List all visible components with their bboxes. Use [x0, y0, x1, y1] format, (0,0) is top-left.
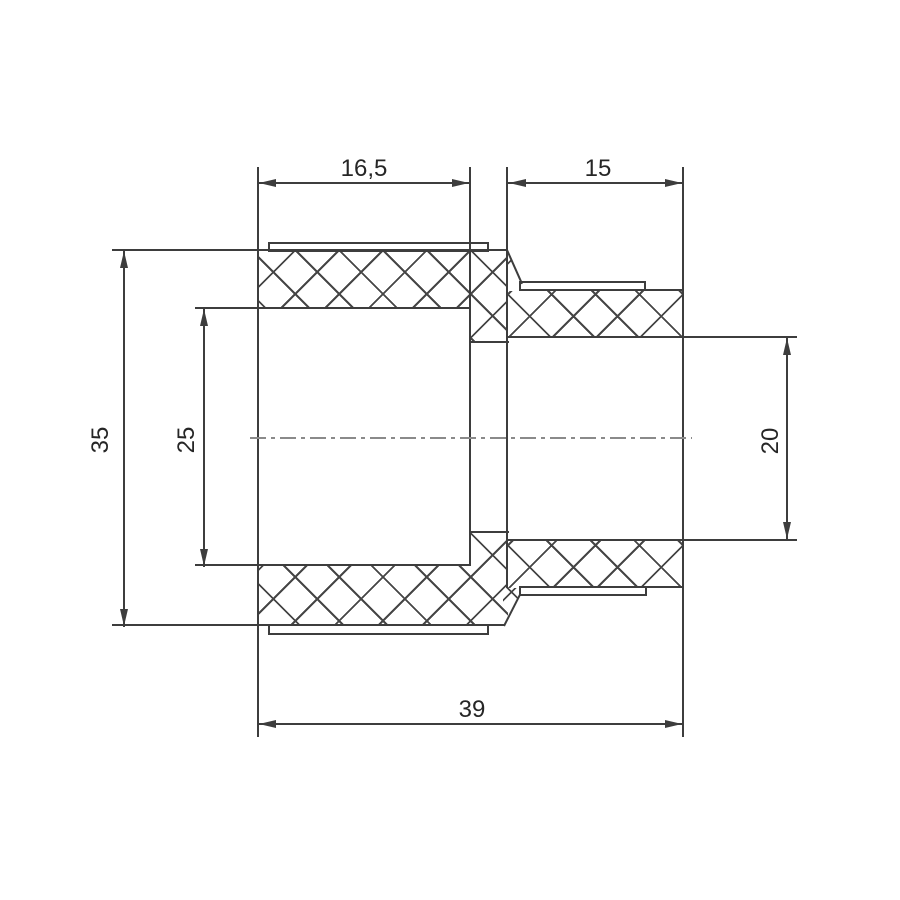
- through-hole-top-edge: [469, 341, 509, 343]
- internal-step-edge-left-socket: [469, 167, 471, 566]
- dim-15-arrow-left-icon: [509, 179, 526, 187]
- dim-line-20: [786, 337, 788, 541]
- dim-label-16-5: 16,5: [314, 157, 414, 181]
- dim-label-35: 35: [89, 390, 113, 490]
- dim-label-25: 25: [175, 390, 199, 490]
- dim-16-5-arrow-left-icon: [259, 179, 276, 187]
- dim-label-20: 20: [759, 391, 783, 491]
- right-body-hatch-top: [508, 291, 683, 337]
- dim-line-39: [257, 723, 684, 725]
- dim-39-arrow-right-icon: [665, 720, 682, 728]
- drawing-canvas: 16,5 15 39 35 25 20: [0, 0, 900, 900]
- dim-25-arrow-top-icon: [200, 309, 208, 326]
- dim-line-16-5: [257, 182, 471, 184]
- dim-line-25: [203, 308, 205, 567]
- dim-25-arrow-bottom-icon: [200, 549, 208, 566]
- left-bottom-outer-edge: [112, 624, 504, 626]
- dim-20-arrow-top-icon: [783, 338, 791, 355]
- dim-35-arrow-top-icon: [120, 251, 128, 268]
- right-bottom-outer-edge: [519, 586, 684, 588]
- dim-16-5-arrow-right-icon: [452, 179, 469, 187]
- through-hole-bottom-edge: [469, 531, 509, 533]
- left-top-outer-edge: [112, 249, 508, 251]
- right-face-edge-with-extensions: [682, 167, 684, 737]
- body-step-edge: [506, 167, 508, 588]
- dim-label-15: 15: [548, 157, 648, 181]
- left-face-edge-with-extensions: [257, 167, 259, 737]
- dim-20-arrow-bottom-icon: [783, 522, 791, 539]
- dim-35-arrow-bottom-icon: [120, 609, 128, 626]
- right-body-hatch-bottom: [508, 541, 683, 588]
- left-bore-top-edge: [195, 307, 471, 309]
- dim-line-35: [123, 250, 125, 627]
- left-bore-bottom-edge: [195, 564, 471, 566]
- dim-15-arrow-right-icon: [665, 179, 682, 187]
- right-bore-bottom-edge: [507, 539, 797, 541]
- dim-label-39: 39: [422, 698, 522, 722]
- center-axis-line: [250, 437, 692, 439]
- right-bore-top-edge: [507, 336, 797, 338]
- dim-line-15: [507, 182, 684, 184]
- dim-39-arrow-left-icon: [259, 720, 276, 728]
- right-top-outer-edge: [519, 289, 684, 291]
